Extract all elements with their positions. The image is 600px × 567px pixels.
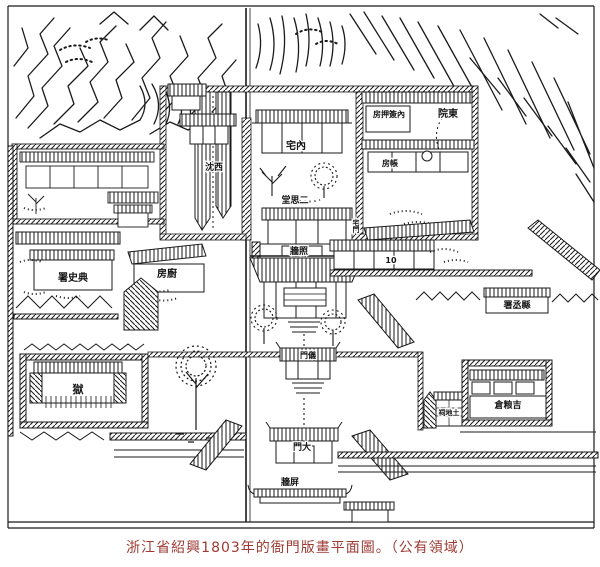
granary-compound (462, 360, 552, 426)
label-ceremonial-gate: 門儀 (300, 350, 316, 360)
label-deputy-magistrate-office: 署丞縣 (502, 299, 530, 311)
hill-pavilion (168, 84, 206, 110)
label-kitchen: 房廚 (157, 267, 177, 280)
label-prison: 獄 (72, 382, 84, 396)
label-outer-screen-wall: 牆屏 (281, 476, 299, 488)
diagonal-corridor-upper (358, 294, 414, 348)
second-hall-building (262, 208, 352, 244)
page: 沈西宅內房押簽內院東房帳堂思二宅門牆照房廚署史典10署丞縣門儀獄祠地土倉粮吉門大… (0, 0, 600, 567)
label-jail-warden-office: 署史典 (57, 271, 88, 284)
label-earth-god-shrine: 祠地土 (439, 408, 460, 417)
yamen-plan-image: 沈西宅內房押簽內院東房帳堂思二宅門牆照房廚署史典10署丞縣門儀獄祠地土倉粮吉門大… (0, 0, 600, 532)
label-inner-screen-wall: 牆照 (290, 245, 308, 257)
label-second-hall: 堂思二 (281, 194, 308, 206)
label-west-corridor: 沈西 (205, 161, 223, 173)
big-tree (176, 346, 216, 442)
outer-screen-wall-structure (248, 485, 394, 522)
page-fold-line (246, 8, 250, 522)
label-granary: 倉粮吉 (493, 399, 521, 411)
label-accounts-room: 房帳 (382, 158, 398, 168)
ceremonial-gate-building (276, 342, 340, 393)
label-residence-gate: 宅門 (352, 218, 360, 234)
label-inner-residence-hall: 宅內 (286, 139, 306, 152)
west-corridor-roofs (195, 92, 231, 230)
clerks-wing (330, 240, 532, 276)
label-inner-signing-office: 房押簽內 (373, 109, 405, 119)
west-compound (12, 144, 164, 227)
label-east-courtyard: 院東 (438, 107, 458, 120)
label-main-gate: 門大 (293, 441, 311, 453)
label-clerks-row-mark: 10 (385, 256, 397, 265)
mountain-range-center (256, 14, 345, 74)
inner-gate-tower (180, 114, 236, 144)
caption: 浙江省紹興1803年的衙門版畫平面圖。（公有領域） (0, 537, 600, 557)
